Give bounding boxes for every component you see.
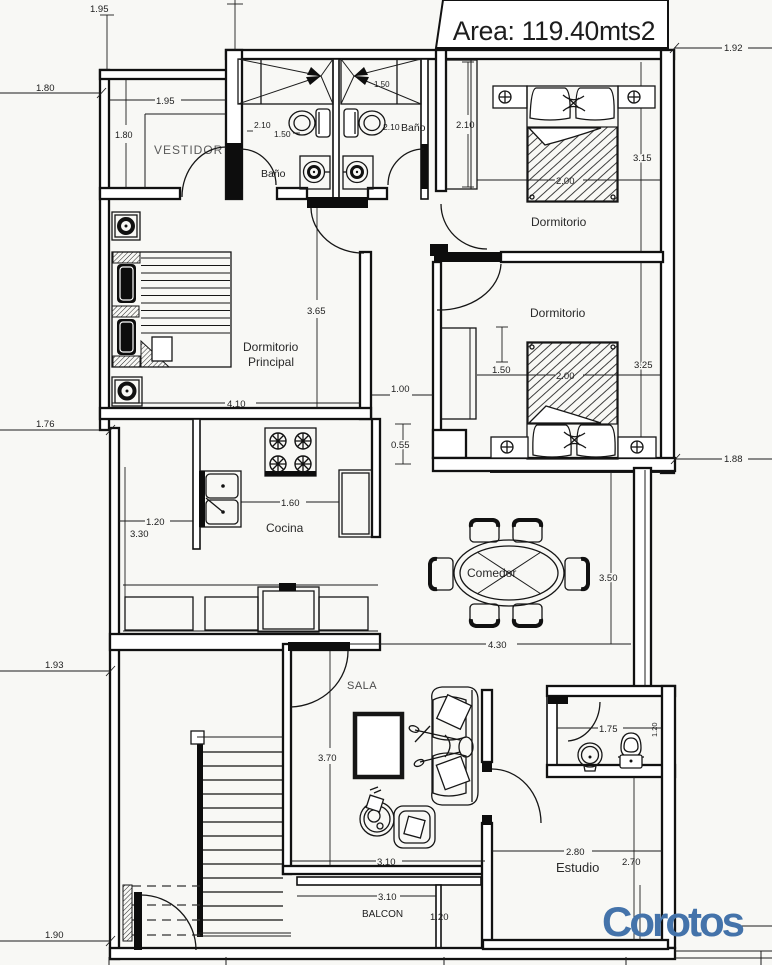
svg-text:3.50: 3.50 [599, 573, 618, 584]
svg-text:3.70: 3.70 [318, 753, 337, 764]
svg-text:1.60: 1.60 [281, 498, 300, 509]
svg-text:4.10: 4.10 [227, 399, 246, 410]
svg-text:1.92: 1.92 [724, 43, 743, 54]
svg-text:0.55: 0.55 [391, 440, 410, 451]
svg-text:1.80: 1.80 [36, 83, 55, 94]
svg-text:1.88: 1.88 [724, 454, 743, 465]
svg-text:3.10: 3.10 [378, 892, 397, 903]
svg-text:1.75: 1.75 [599, 724, 618, 735]
svg-text:1.00: 1.00 [391, 384, 410, 395]
svg-text:3.25: 3.25 [634, 360, 653, 371]
svg-text:VESTIDOR: VESTIDOR [154, 143, 223, 157]
svg-text:1.20: 1.20 [430, 912, 449, 923]
svg-text:Dormitorio: Dormitorio [531, 215, 587, 229]
svg-text:2.80: 2.80 [566, 847, 585, 858]
svg-text:3.65: 3.65 [307, 306, 326, 317]
svg-text:Area: 119.40mts2: Area: 119.40mts2 [453, 16, 655, 46]
svg-text:1.50: 1.50 [274, 129, 291, 139]
svg-text:1.95: 1.95 [156, 96, 175, 107]
svg-text:Dormitorio: Dormitorio [530, 306, 586, 320]
svg-text:2.10: 2.10 [254, 120, 271, 130]
svg-text:SALA: SALA [347, 680, 377, 692]
svg-text:1.93: 1.93 [45, 660, 64, 671]
svg-text:1.80: 1.80 [115, 130, 133, 140]
svg-text:3.15: 3.15 [633, 153, 652, 164]
svg-text:Dormitorio: Dormitorio [243, 340, 299, 354]
svg-text:2.10: 2.10 [456, 120, 475, 131]
svg-text:2.70: 2.70 [622, 857, 641, 868]
svg-text:4.30: 4.30 [488, 640, 507, 651]
svg-text:3.30: 3.30 [130, 529, 149, 540]
svg-text:3.10: 3.10 [377, 857, 396, 868]
svg-text:Principal: Principal [248, 355, 294, 369]
svg-text:1.95: 1.95 [90, 4, 109, 15]
svg-text:1.90: 1.90 [45, 930, 64, 941]
svg-text:1.20: 1.20 [650, 722, 659, 737]
svg-text:1.20: 1.20 [146, 517, 165, 528]
svg-text:Cocina: Cocina [266, 521, 304, 535]
svg-text:Baño: Baño [401, 122, 426, 134]
svg-text:Estudio: Estudio [556, 860, 599, 875]
svg-text:Corotos: Corotos [602, 898, 744, 945]
svg-text:1.76: 1.76 [36, 419, 55, 430]
svg-text:BALCON: BALCON [362, 909, 403, 920]
svg-text:1.50: 1.50 [492, 365, 511, 376]
